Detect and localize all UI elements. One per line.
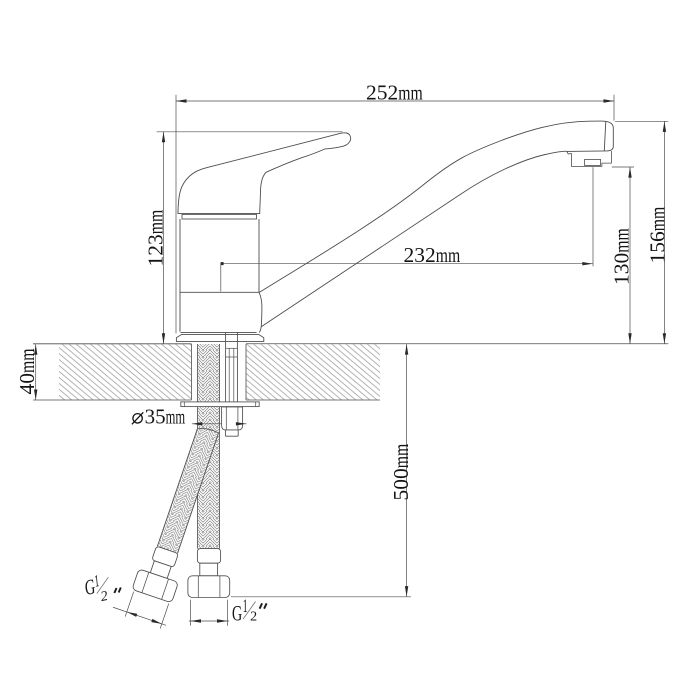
svg-text:252mm: 252mm — [366, 80, 423, 104]
svg-text:35mm: 35mm — [145, 405, 186, 429]
svg-text:156mm: 156mm — [645, 207, 669, 264]
svg-text:232mm: 232mm — [404, 243, 461, 267]
svg-text:2: 2 — [250, 609, 257, 624]
svg-text:123mm: 123mm — [143, 210, 167, 267]
svg-text:130mm: 130mm — [609, 228, 633, 285]
svg-text:G: G — [232, 600, 242, 625]
svg-text:500mm: 500mm — [389, 444, 413, 501]
svg-text:40mm: 40mm — [15, 348, 39, 394]
